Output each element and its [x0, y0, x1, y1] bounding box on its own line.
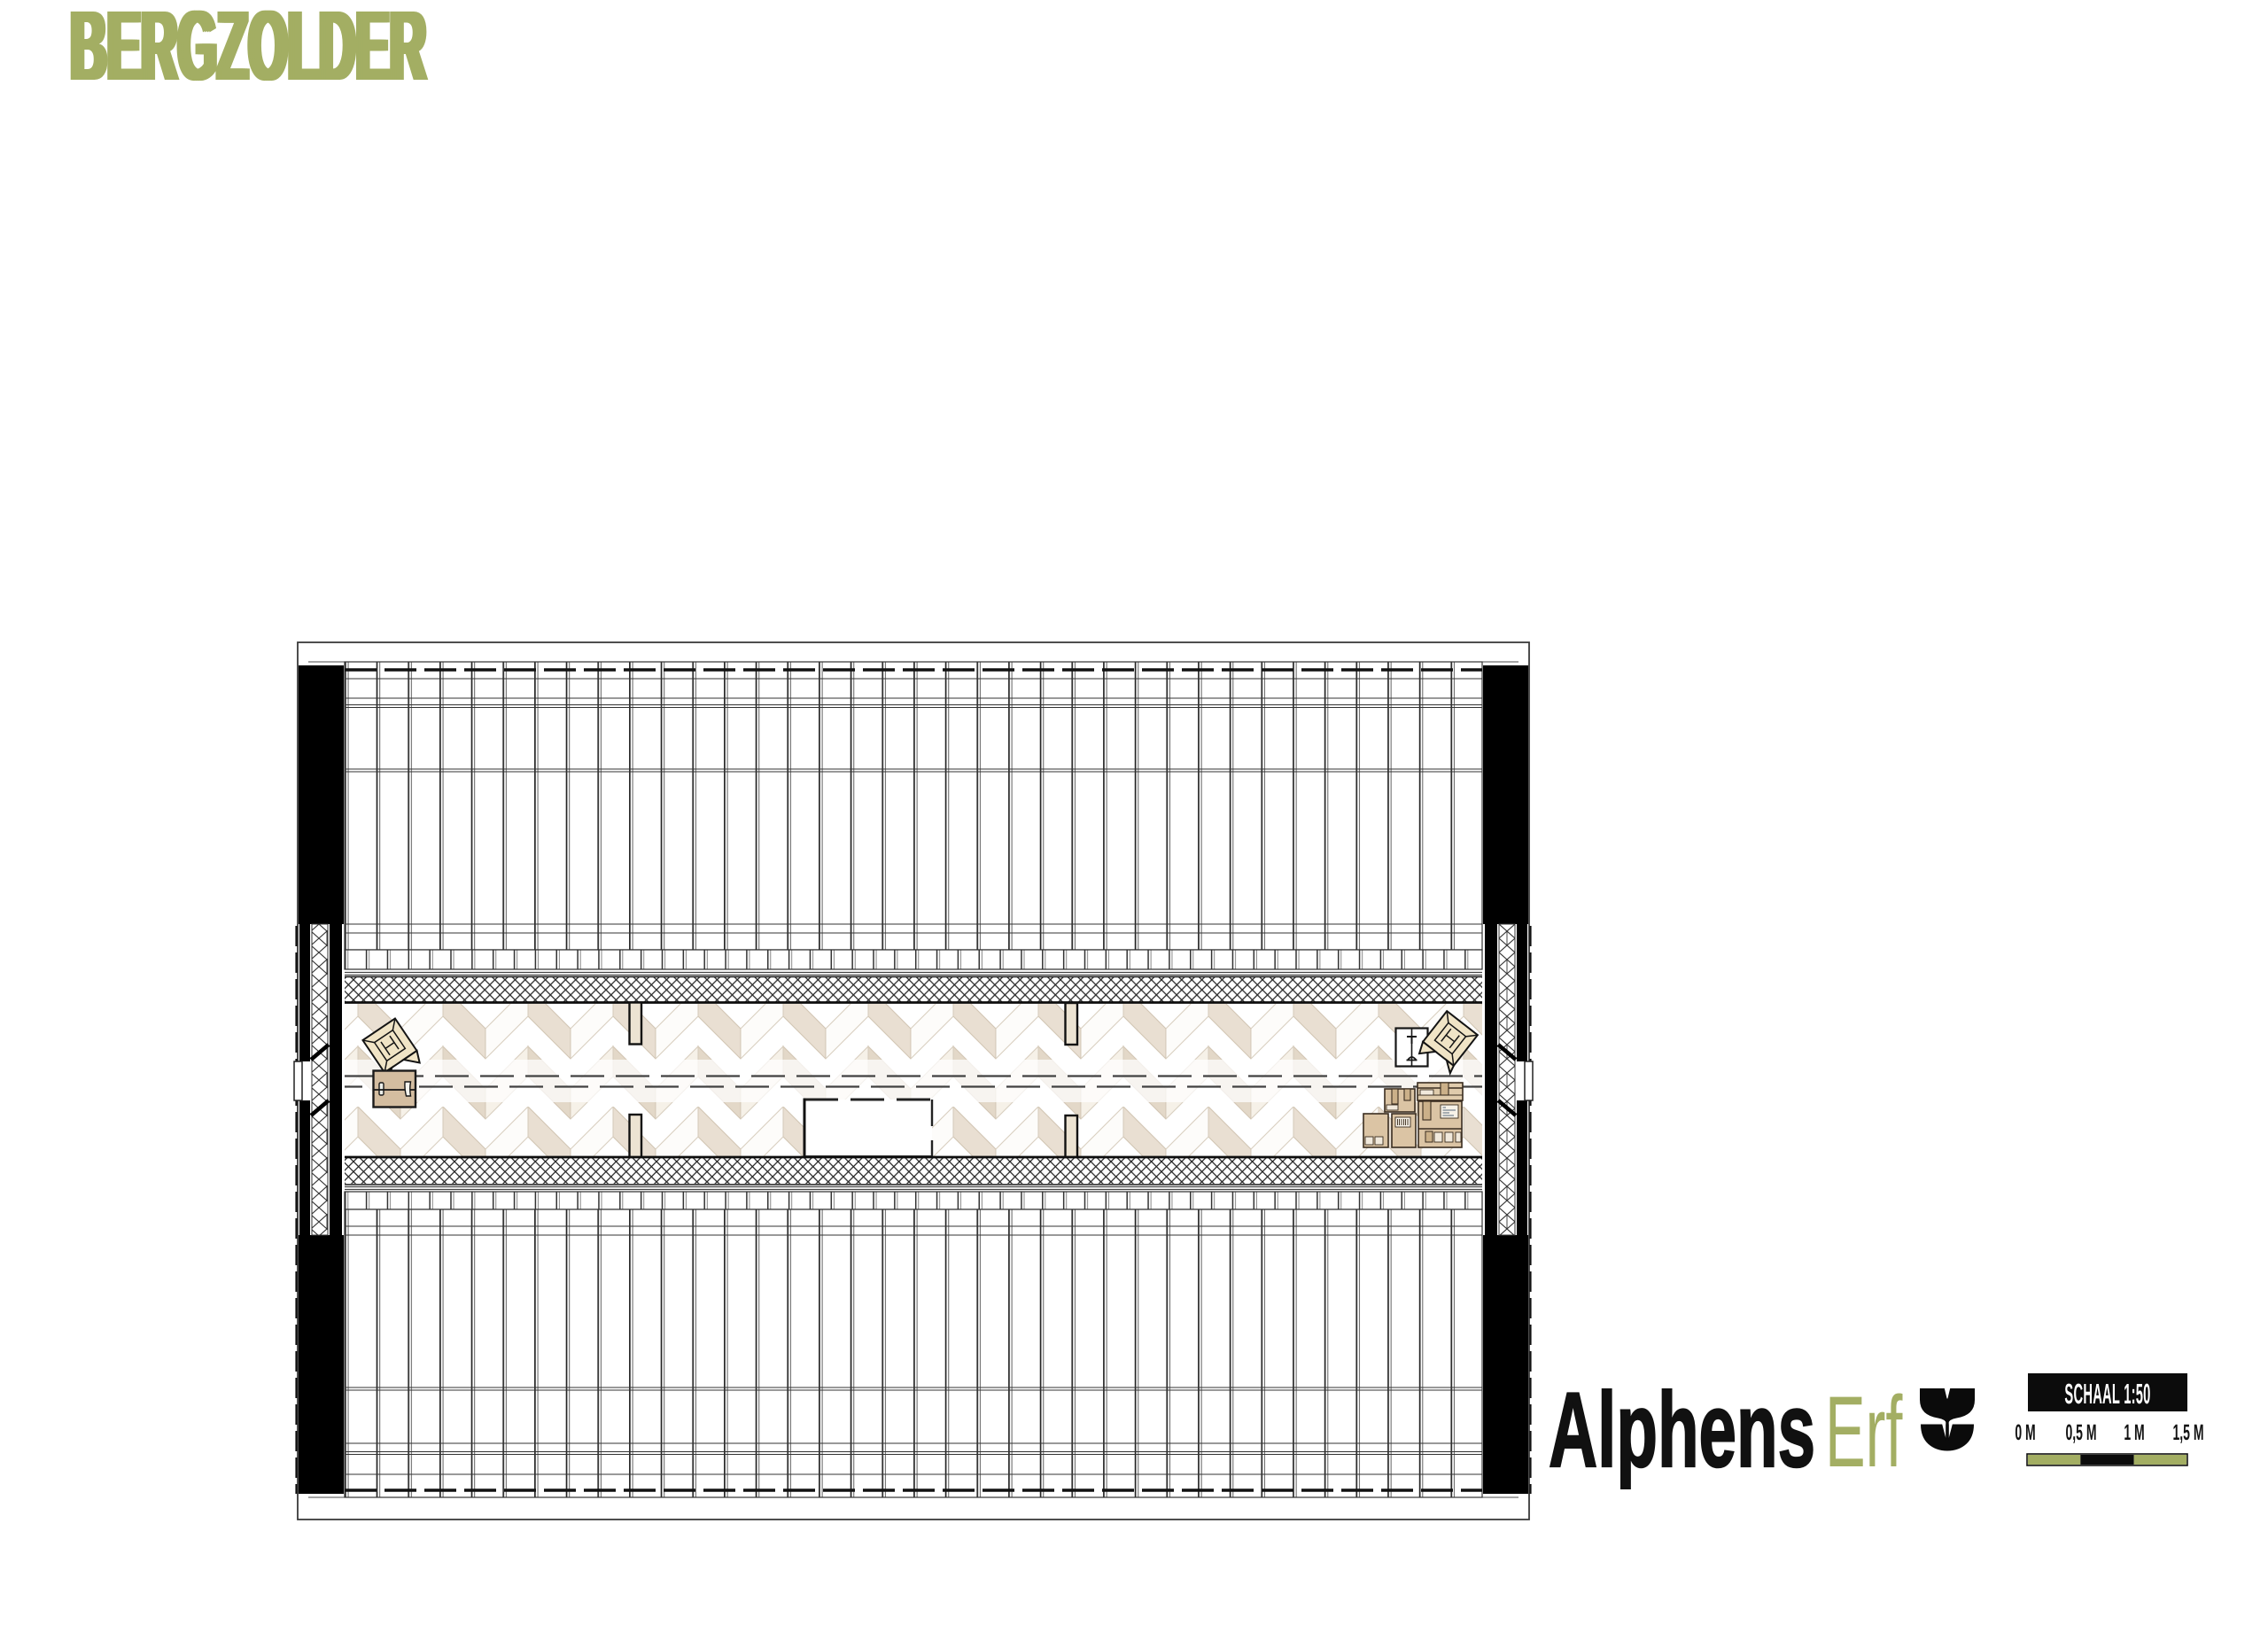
svg-text:0 M: 0 M — [2015, 1420, 2035, 1445]
svg-text:1 M: 1 M — [2124, 1420, 2144, 1445]
svg-text:0,5 M: 0,5 M — [2065, 1420, 2096, 1445]
svg-text:Alphens: Alphens — [1549, 1371, 1815, 1489]
svg-text:SCHAAL 1:50: SCHAAL 1:50 — [2064, 1378, 2150, 1410]
svg-text:Erf: Erf — [1825, 1376, 1903, 1488]
svg-text:BERGZOLDER: BERGZOLDER — [74, 0, 431, 101]
svg-text:1,5 M: 1,5 M — [2172, 1420, 2203, 1445]
